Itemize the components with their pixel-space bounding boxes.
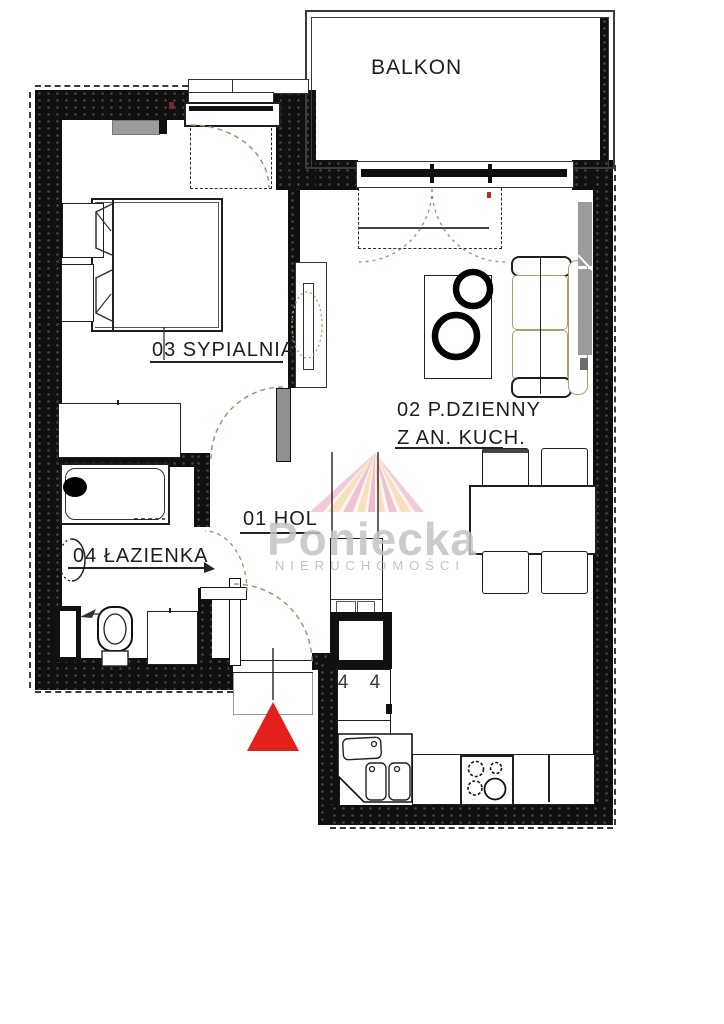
dresser-tick	[117, 400, 119, 405]
balcony-inner-line	[311, 17, 609, 167]
sofa-center-line	[540, 256, 541, 394]
bedroom-window-sill-divider	[232, 79, 233, 92]
toilet-arrow	[80, 609, 96, 618]
nightstand-bottom	[61, 264, 94, 322]
bedroom-label-underline	[150, 361, 283, 363]
bathtub-inner	[65, 468, 165, 520]
living-label-line1: 02 P.DZIENNY	[397, 399, 541, 422]
balcony-label: BALKON	[371, 56, 462, 80]
bathroom-label-underline	[68, 567, 208, 569]
stove	[460, 755, 514, 806]
sink-drain-1	[372, 742, 377, 747]
hatch-left-edge	[29, 92, 31, 688]
bed-headboard-line	[112, 200, 114, 330]
balcony-window-red-mark	[487, 192, 491, 198]
sink-basin-double-left	[366, 763, 386, 800]
toilet-bowl-inner	[104, 614, 126, 644]
floor-plan: BALKON	[0, 0, 724, 1024]
bedroom-dresser	[58, 403, 181, 458]
coffee-table	[424, 275, 492, 379]
bathroom-label: 04 ŁAZIENKA	[73, 545, 209, 568]
hatch-right-edge	[614, 165, 616, 825]
bedroom-door-leaf	[276, 388, 291, 462]
kitchen-cabinet-marks: 4 4	[337, 672, 389, 694]
watermark-fan-logo	[308, 453, 425, 512]
washing-machine-tick	[169, 608, 171, 613]
dining-chair-4	[541, 551, 588, 594]
living-radiator-upper	[578, 202, 592, 266]
washing-machine	[147, 611, 198, 665]
entrance-vestibule	[233, 672, 313, 715]
wall-bathroom-bottom	[35, 658, 233, 690]
wall-bottom	[330, 805, 613, 825]
bedroom-window-glazing-bar	[189, 106, 273, 111]
hatch-top-edge	[35, 85, 188, 87]
hatch-bottom-edge	[330, 827, 613, 829]
living-radiator-lower	[578, 269, 592, 355]
counter-divider-1	[460, 755, 462, 802]
dining-chair-2	[541, 448, 588, 489]
balcony-outline	[305, 10, 615, 169]
dining-table	[469, 485, 597, 555]
bed-inner-line	[95, 202, 219, 328]
toilet-bowl-outline	[98, 607, 132, 651]
living-label-underline	[395, 447, 503, 449]
sofa-armrest-bottom	[511, 377, 572, 398]
sofa-armrest-top	[511, 256, 572, 277]
sink-drain-3	[395, 767, 400, 772]
bedroom-door-arc	[211, 387, 283, 459]
bedroom-radiator-bracket	[159, 118, 167, 134]
bathroom-shaft	[55, 606, 81, 662]
sink-basin-single	[343, 737, 382, 760]
kitchen-shaft	[330, 612, 392, 669]
wall-bathroom-right-upper	[194, 453, 210, 527]
dining-chair-3	[482, 551, 529, 594]
watermark-subtitle: NIERUCHOMOŚCI	[270, 558, 470, 573]
sink-basin-double-right	[389, 763, 410, 800]
bedroom-window-swing-zone	[190, 123, 272, 189]
entrance-threshold	[233, 660, 313, 673]
balcony-window-mullion-1	[430, 164, 434, 183]
bedroom-label: 03 SYPIALNIA	[152, 339, 295, 362]
cabinet-handle-nub	[386, 704, 392, 714]
tv-panel	[303, 283, 314, 370]
wall-left	[35, 90, 62, 690]
sink-unit-outline	[338, 734, 412, 802]
dining-chair-1	[482, 448, 529, 489]
counter-divider-2	[548, 755, 550, 802]
bedroom-radiator	[112, 120, 160, 135]
bathroom-door-leaf	[200, 587, 247, 600]
bathtub	[60, 463, 170, 525]
sink-drain-2	[370, 767, 375, 772]
kitchen-band-cabinet	[337, 720, 391, 738]
hatch-bottom-left-edge	[35, 691, 233, 693]
window-red-mark	[169, 102, 174, 109]
bed	[91, 198, 223, 332]
balcony-door-threshold-line	[358, 227, 489, 229]
balcony-door-swing-zone	[358, 188, 502, 249]
radiator-valve	[580, 358, 588, 370]
balcony-window-mullion-2	[488, 164, 492, 183]
nightstand-top	[62, 203, 104, 258]
balcony-window-glazing-bar	[361, 169, 567, 177]
